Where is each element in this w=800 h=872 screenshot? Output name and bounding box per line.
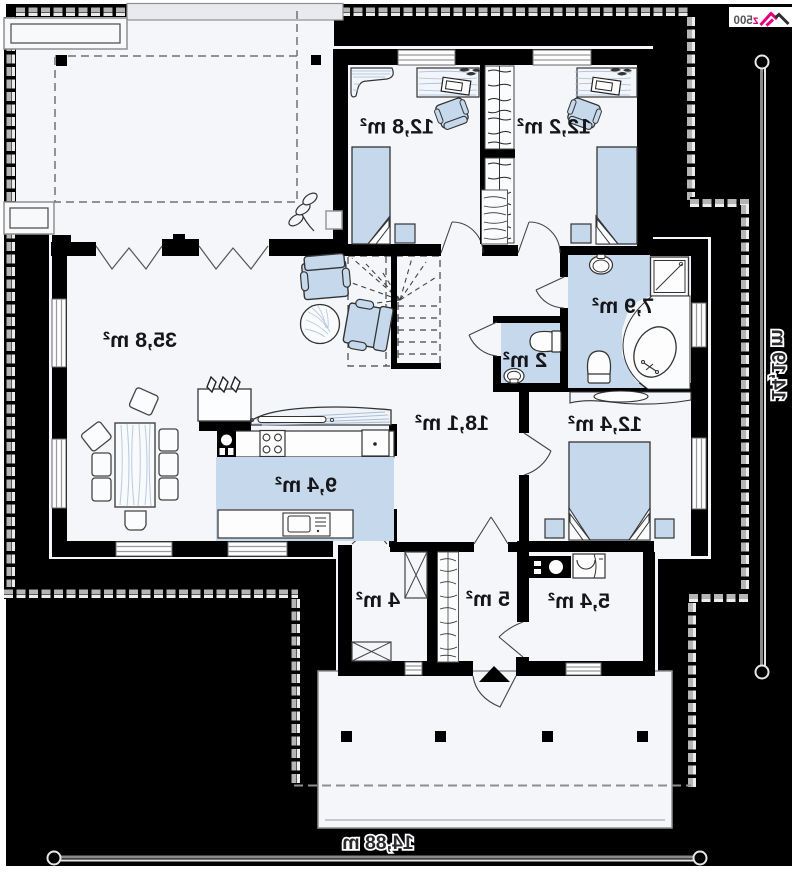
svg-text:14,88 m: 14,88 m	[342, 832, 414, 854]
svg-text:9,4 m²: 9,4 m²	[275, 473, 337, 497]
svg-text:z500: z500	[734, 15, 759, 27]
svg-text:14,19 m: 14,19 m	[767, 329, 789, 401]
svg-text:4 m²: 4 m²	[356, 588, 400, 612]
svg-text:12,8 m²: 12,8 m²	[360, 115, 434, 139]
svg-text:5 m²: 5 m²	[466, 587, 510, 611]
svg-text:5,4 m²: 5,4 m²	[548, 589, 610, 613]
svg-text:2 m²: 2 m²	[503, 348, 547, 372]
svg-text:12,4 m²: 12,4 m²	[568, 412, 642, 436]
svg-text:35,8 m²: 35,8 m²	[103, 328, 177, 352]
svg-text:7,9 m²: 7,9 m²	[592, 294, 654, 318]
svg-text:18,1 m²: 18,1 m²	[415, 411, 489, 435]
svg-text:12,2 m²: 12,2 m²	[517, 115, 591, 139]
